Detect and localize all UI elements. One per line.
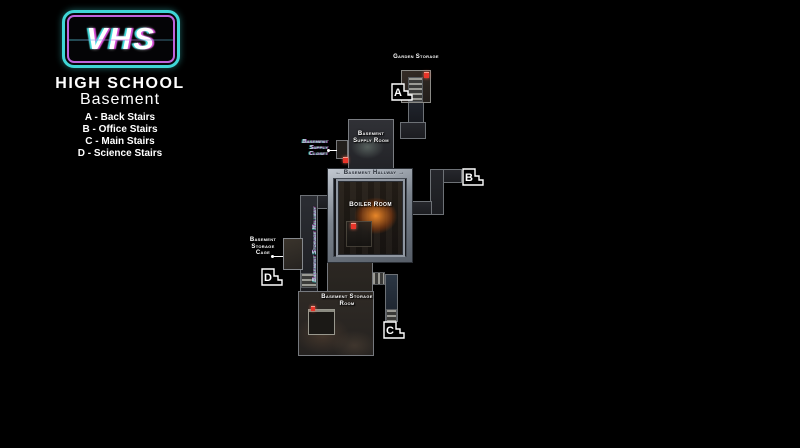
alarm-marker-storage	[311, 306, 315, 311]
boiler-machinery	[346, 221, 372, 247]
basement-storage-room-upper	[327, 262, 373, 292]
svg-text:A: A	[394, 87, 402, 99]
supply-room-label: Basement Supply Room	[348, 131, 394, 144]
storage-cage-pointer	[274, 256, 283, 257]
alarm-marker-supply	[343, 157, 348, 163]
boiler-room: Boiler Room	[336, 179, 405, 257]
corridor-garden-stairs	[408, 102, 424, 124]
corridor-b-vertical	[430, 169, 444, 215]
game-map-screen: VHS HIGH SCHOOL Basement A - Back Stairs…	[0, 0, 800, 448]
logo-glitch-line	[69, 39, 173, 41]
storage-room-label: Basement Storage Room	[317, 294, 377, 307]
stairs-icon-a: A	[391, 83, 413, 101]
stairs-icon-d: D	[261, 268, 283, 286]
svg-text:B: B	[465, 172, 473, 184]
supply-closet-pointer	[330, 150, 337, 151]
vhs-logo: VHS	[62, 10, 180, 68]
alarm-marker-garden	[424, 72, 429, 78]
svg-text:C: C	[386, 325, 394, 337]
boiler-room-label: Boiler Room	[338, 201, 403, 208]
corridor-b-connector	[411, 201, 432, 215]
legend-item-a: A - Back Stairs	[20, 112, 220, 124]
basement-hallway-ring: ← Basement Hallway → Boiler Room	[327, 168, 413, 263]
corridor-c-stairs-connector	[372, 272, 385, 285]
basement-supply-room	[348, 119, 394, 170]
stairs-icon-b: B	[462, 168, 484, 186]
stairs-legend: A - Back Stairs B - Office Stairs C - Ma…	[20, 112, 220, 160]
storage-hallway-label-text: Basement Storage Hallway	[312, 207, 318, 282]
svg-text:D: D	[264, 272, 272, 284]
legend-item-b: B - Office Stairs	[20, 124, 220, 136]
stairs-icon-c: C	[383, 321, 405, 339]
alarm-marker-boiler	[351, 223, 356, 229]
corridor-garden-lower	[400, 122, 426, 139]
legend-item-c: C - Main Stairs	[20, 136, 220, 148]
storage-cage-label: Basement Storage Cage	[245, 237, 281, 257]
supply-closet-label: Basement Supply Closet	[294, 139, 328, 157]
basement-storage-cage-room	[283, 238, 303, 270]
storage-room-shelf-cage	[308, 309, 335, 335]
storage-hallway-vertical-label: Basement Storage Hallway	[303, 195, 316, 294]
basement-hallway-label: ← Basement Hallway →	[328, 170, 412, 176]
map-subtitle: Basement	[20, 91, 220, 109]
legend-item-d: D - Science Stairs	[20, 148, 220, 160]
garden-storage-label: Garden Storage	[391, 54, 441, 61]
